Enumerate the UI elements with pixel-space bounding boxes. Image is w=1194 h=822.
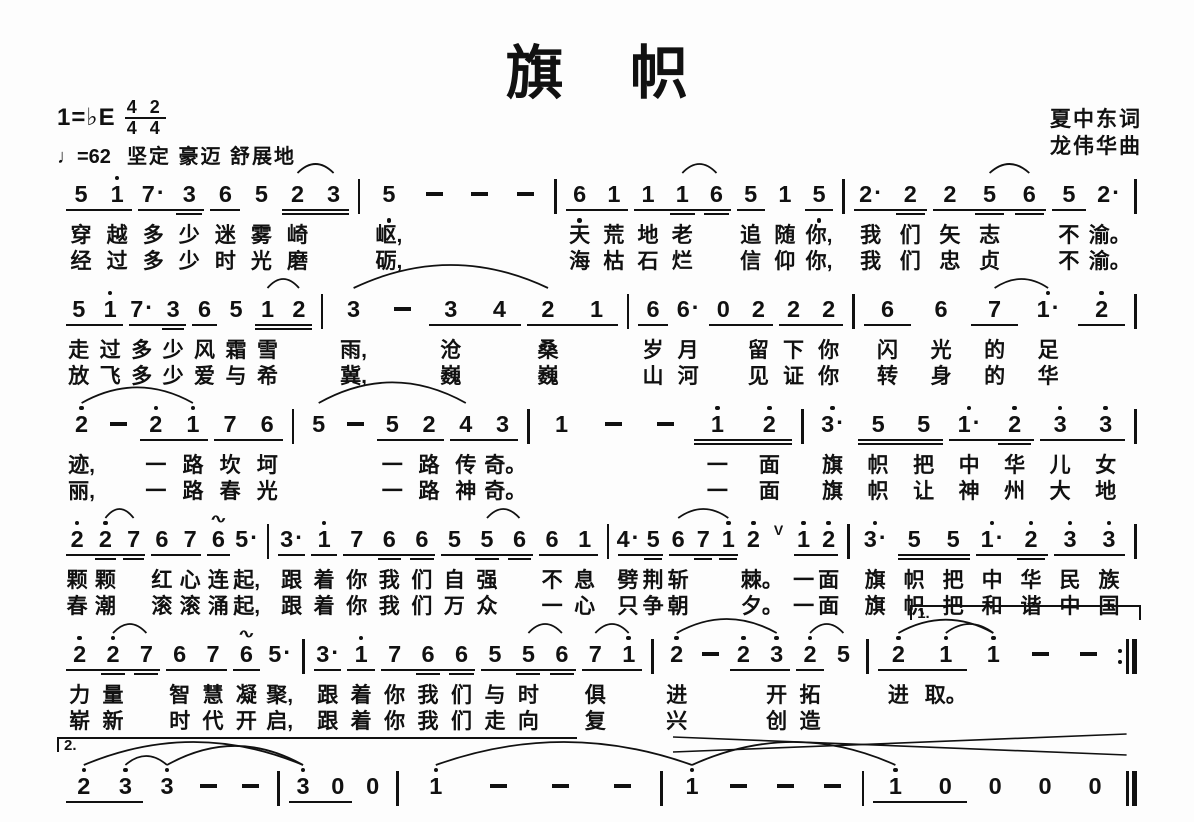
system-2: 517·36512走过多少风霜雪放飞多少爱与希33421雨,沧桑冀,巍巍66·0… — [57, 287, 1137, 389]
note-token: 0 — [920, 764, 970, 814]
note-token — [588, 402, 640, 452]
beam-line — [1078, 324, 1126, 326]
volta-label: 1. — [917, 605, 930, 622]
beam-group: 2 — [660, 632, 727, 682]
note-token: 5 — [243, 172, 279, 222]
notes-row: 5 — [360, 172, 554, 222]
lyric-syllable: 们 — [445, 709, 478, 734]
beam-line — [66, 209, 132, 211]
lyric-syllable — [572, 338, 621, 363]
lyric-syllable: 涌 — [204, 594, 232, 619]
beam-group: 5 — [802, 172, 836, 222]
note-token: 2 — [816, 517, 841, 567]
note-number: 5 — [488, 640, 501, 668]
beam-group: 671 — [666, 517, 741, 567]
lyric-syllable — [588, 479, 640, 504]
notes-row: 6671·2 — [855, 287, 1135, 337]
duration-dash — [702, 640, 719, 668]
note-token: 1 — [536, 402, 588, 452]
duration-dash — [394, 295, 411, 323]
beam-group: 3· — [311, 632, 344, 682]
note-token: 1 — [308, 517, 341, 567]
lyric-syllable: 迹, — [63, 453, 100, 478]
note-number: 6 — [198, 295, 211, 323]
beam-group: 1 — [405, 764, 654, 814]
lyric-syllable: 大 — [1037, 479, 1083, 504]
note-number: 5 — [312, 410, 325, 438]
lyrics-verse1: 迹,一路坎坷 — [57, 453, 292, 478]
volta-bracket: 1. — [910, 605, 1141, 620]
note-number: 6 — [1023, 180, 1036, 208]
measure: 22325进开拓兴创造 — [654, 632, 866, 734]
lyric-syllable: 女 — [1083, 453, 1129, 478]
note-token: 2 — [96, 632, 129, 682]
note-number: 1 — [889, 772, 902, 800]
lyric-syllable — [412, 223, 457, 248]
note-number: 7 — [388, 640, 401, 668]
lyric-syllable: 地 — [1083, 479, 1129, 504]
note-token: 2 — [992, 402, 1038, 452]
note-token: 6 — [635, 287, 670, 337]
lyric-syllable: 们 — [406, 568, 439, 593]
beam-group: 43 — [447, 402, 521, 452]
note-number: 1 — [555, 410, 568, 438]
note-number: 2 — [99, 525, 112, 553]
lyric-syllable — [503, 249, 548, 274]
lyric-syllable: 时 — [163, 709, 196, 734]
beam-extra — [449, 673, 473, 675]
note-number: 5 — [947, 525, 960, 553]
note-number: 2 — [77, 772, 90, 800]
lyric-syllable: 的 — [968, 338, 1022, 363]
beam-extra — [896, 213, 925, 215]
note-token — [1017, 632, 1064, 682]
note-number: 7· — [130, 295, 153, 323]
lyrics-verse2: 转身的华 — [855, 364, 1135, 389]
beam-line — [796, 669, 823, 671]
notes-row: 22767∿65· — [57, 517, 267, 567]
measure: 6671·2闪光的足转身的华 — [855, 287, 1135, 389]
note-number: 1 — [186, 410, 199, 438]
lyric-syllable: 旗 — [810, 453, 856, 478]
beam-group: 5 — [827, 632, 860, 682]
note-token — [412, 172, 457, 222]
note-number: 1 — [778, 180, 791, 208]
note-number: 1 — [676, 180, 689, 208]
note-token — [762, 764, 809, 814]
beam-group: 21 — [875, 632, 970, 682]
beam-group: 227 — [63, 632, 163, 682]
note-token: 5 — [802, 172, 836, 222]
note-number: 5 — [386, 410, 399, 438]
note-token: 2 — [1012, 517, 1051, 567]
note-token: 3 — [286, 764, 321, 814]
beam-group: 766 — [340, 517, 438, 567]
octave-dot-above — [873, 517, 878, 525]
lyric-syllable — [693, 709, 726, 734]
lyric-syllable: 红 — [148, 568, 176, 593]
measure: 10000 — [864, 764, 1125, 814]
duration-dash — [552, 772, 569, 800]
note-number: 1 — [622, 640, 635, 668]
note-token: 1 — [631, 172, 665, 222]
lyric-syllable: 我 — [851, 223, 891, 248]
beam-line — [441, 554, 533, 556]
beam-line — [1052, 209, 1086, 211]
lyric-syllable — [691, 594, 716, 619]
note-number: 2 — [1095, 295, 1108, 323]
note-number: 6 — [672, 525, 685, 553]
beam-line — [381, 669, 475, 671]
lyrics-verse1: 岁月留下你 — [629, 338, 852, 363]
octave-dot-above — [767, 402, 772, 410]
lyric-syllable — [716, 594, 741, 619]
barline — [1134, 409, 1137, 444]
lyric-syllable: 凝 — [230, 683, 263, 708]
breath-mark: V — [774, 516, 783, 544]
note-token — [1064, 632, 1111, 682]
lyric-syllable: 爱 — [189, 364, 220, 389]
lyric-syllable — [706, 364, 741, 389]
note-number: 3 — [1102, 525, 1115, 553]
beam-group: 12 — [791, 517, 841, 567]
barline — [1134, 524, 1137, 559]
note-token: 5 — [438, 517, 471, 567]
beam-line — [343, 554, 435, 556]
beam-line — [347, 669, 374, 671]
octave-dot-above — [191, 402, 196, 410]
notes-row: 2·225652· — [845, 172, 1135, 222]
lyric-syllable: 一 — [691, 479, 743, 504]
note-token: 7 — [196, 632, 229, 682]
notes-row: 3·551·233 — [804, 402, 1135, 452]
note-number: 1 — [429, 772, 442, 800]
beam-line — [210, 209, 240, 211]
octave-dot-above — [103, 517, 108, 525]
note-number: 6 — [455, 640, 468, 668]
note-token: 3· — [810, 402, 856, 452]
measure: 2·225652·我们矢志不渝。我们忠贞不渝。 — [845, 172, 1135, 274]
note-token: 5 — [300, 402, 337, 452]
note-number: 1 — [797, 525, 810, 553]
octave-dot-above — [322, 517, 327, 525]
octave-dot-above — [154, 402, 159, 410]
measure: 4·56712V12劈荆斩棘。一面只争朝夕。一面 — [609, 517, 847, 619]
lyric-syllable: 石 — [631, 249, 665, 274]
lyric-syllable: 华 — [1012, 568, 1051, 593]
lyric-syllable: 开 — [230, 709, 263, 734]
note-token: 1 — [768, 172, 802, 222]
lyric-syllable: 面 — [743, 453, 795, 478]
note-token: 6 — [445, 632, 478, 682]
lyric-syllable: 颗 — [91, 568, 119, 593]
beam-line — [805, 209, 833, 211]
note-number: 2 — [892, 640, 905, 668]
lyric-syllable: 帜 — [855, 479, 901, 504]
lyric-syllable: 一 — [791, 594, 816, 619]
note-token: 0 — [970, 764, 1020, 814]
lyric-syllable: 开 — [760, 683, 793, 708]
lyrics-verse1: 跟着你我们与时俱 — [305, 683, 651, 708]
note-token: 1· — [1021, 287, 1075, 337]
lyric-syllable: 身 — [914, 364, 968, 389]
note-number: 6 — [513, 525, 526, 553]
lyric-syllable: 少 — [171, 249, 207, 274]
note-token: 5 — [63, 172, 99, 222]
barline — [1134, 179, 1137, 214]
lyric-syllable: 州 — [992, 479, 1038, 504]
measure: 61116515天荒地老追随你,海枯石烂信仰你, — [557, 172, 843, 274]
repeat-dots — [1118, 639, 1122, 674]
beam-extra — [123, 558, 143, 560]
lyric-syllable — [612, 683, 645, 708]
lyric-syllable — [827, 709, 860, 734]
song-title: 旗 帜 — [0, 26, 1194, 110]
beam-group: 116 — [631, 172, 734, 222]
note-number: 4 — [459, 410, 472, 438]
beam-line — [140, 439, 208, 441]
note-token: 6 — [545, 632, 578, 682]
system-4: 22767∿65·颗颗红心连起,春潮滚滚涌起,3·176655661跟着你我们自… — [57, 517, 1137, 619]
note-number: 5 — [1062, 180, 1075, 208]
beam-group: 71 — [579, 632, 646, 682]
note-token — [503, 172, 548, 222]
note-token: 6 — [914, 287, 968, 337]
measure: 112一面一面 — [530, 402, 802, 504]
beam-group: 5 — [1049, 172, 1089, 222]
lyric-syllable — [337, 453, 374, 478]
slur-arc — [82, 387, 193, 403]
note-number: 3· — [864, 525, 887, 553]
beam-line — [1040, 439, 1125, 441]
beam-line — [255, 324, 312, 326]
note-number: 3 — [296, 772, 309, 800]
beam-line — [66, 554, 145, 556]
lyric-syllable: 过 — [99, 249, 135, 274]
notes-row: 4·56712V12 — [609, 517, 847, 567]
lyrics-verse1: 进取。 — [869, 683, 1118, 708]
octave-dot-above — [77, 632, 82, 640]
lyrics-verse2: 海枯石烂信仰你, — [557, 249, 843, 274]
lyric-syllable: 坎 — [212, 453, 249, 478]
lyric-syllable — [475, 338, 524, 363]
note-token: 1 — [669, 764, 716, 814]
note-token: 2 — [727, 632, 760, 682]
lyric-syllable: 海 — [563, 249, 597, 274]
beam-extra — [670, 213, 695, 215]
lyric-syllable: 创 — [760, 709, 793, 734]
beam-extra — [416, 673, 440, 675]
measure: 55243一路传奇。一路神奇。 — [294, 402, 527, 504]
note-token: 7 — [176, 517, 204, 567]
note-token: 4 — [447, 402, 484, 452]
note-number: 3 — [347, 295, 360, 323]
lyric-syllable: 河 — [671, 364, 706, 389]
beam-group: 2· — [1089, 172, 1129, 222]
octave-dot-above — [726, 517, 731, 525]
note-token: 3 — [484, 402, 521, 452]
lyric-syllable — [699, 223, 733, 248]
lyric-syllable: 只 — [615, 594, 640, 619]
note-number: 1 — [578, 525, 591, 553]
note-token — [592, 764, 654, 814]
octave-dot-below — [577, 218, 582, 222]
beam-group: 556 — [438, 517, 536, 567]
note-token: 1 — [870, 764, 920, 814]
note-number: 1 — [607, 180, 620, 208]
beam-line — [66, 801, 143, 803]
note-token: 6 — [207, 172, 243, 222]
notes-row: 22176 — [57, 402, 292, 452]
note-number: 7 — [140, 640, 153, 668]
lyric-syllable — [503, 223, 548, 248]
note-token: 4· — [615, 517, 640, 567]
note-token: 3· — [275, 517, 308, 567]
lyric-syllable: 启, — [263, 709, 296, 734]
beam-group: 1 — [970, 632, 1112, 682]
notes-row: 3·176655671 — [305, 632, 651, 682]
note-token: 3· — [311, 632, 344, 682]
beam-line — [949, 439, 1034, 441]
lyric-syllable: 强 — [471, 568, 504, 593]
beam-line — [278, 554, 305, 556]
lyrics-verse1: 我们矢志不渝。 — [845, 223, 1135, 248]
beam-group: 6 — [635, 287, 670, 337]
measure: 3·551·233旗帜把中华儿女旗帜让神州大地 — [804, 402, 1135, 504]
octave-dot-above — [626, 632, 631, 640]
lyrics-verse2: 旗帜让神州大地 — [804, 479, 1135, 504]
beam-group: 55 — [855, 402, 946, 452]
lyrics-verse1: 劈荆斩棘。一面 — [609, 568, 847, 593]
lyric-syllable: 朝 — [666, 594, 691, 619]
note-token: 1 — [405, 764, 467, 814]
lyric-syllable — [130, 683, 163, 708]
lyric-syllable: 转 — [861, 364, 915, 389]
notes-row: 517·36512 — [57, 287, 321, 337]
lyric-syllable: 面 — [743, 479, 795, 504]
beam-group: 1·2 — [946, 402, 1037, 452]
measure: 22767∿65·颗颗红心连起,春潮滚滚涌起, — [57, 517, 267, 619]
measure: 5岖,砺, — [360, 172, 554, 274]
note-token: 6 — [503, 517, 536, 567]
note-number: 2 — [822, 295, 835, 323]
beam-line — [192, 324, 217, 326]
beam-line — [282, 209, 348, 211]
octave-dot-above — [893, 764, 898, 772]
beam-group: 12 — [691, 402, 795, 452]
beam-group: 6 — [207, 172, 243, 222]
lyric-syllable — [766, 594, 791, 619]
note-number: 2 — [292, 295, 305, 323]
lyric-syllable: 我 — [411, 683, 444, 708]
measure-row: 22176迹,一路坎坷丽,一路春光55243一路传奇。一路神奇。112一面一面3… — [57, 402, 1137, 504]
beam-line — [289, 801, 353, 803]
beam-group: 0 — [355, 764, 390, 814]
beam-line — [933, 209, 1046, 211]
lyrics-verse1: 走过多少风霜雪 — [57, 338, 321, 363]
lyric-syllable — [457, 249, 502, 274]
lyric-syllable: 不 — [1049, 223, 1089, 248]
note-token: 6 — [373, 517, 406, 567]
beam-group: 766 — [378, 632, 478, 682]
note-number: 7 — [697, 525, 710, 553]
note-number: 2 — [422, 410, 435, 438]
octave-dot-above — [75, 517, 80, 525]
note-token: 3· — [856, 517, 895, 567]
note-token: 0 — [1020, 764, 1070, 814]
lyrics-verse1: 天荒地老追随你, — [557, 223, 843, 248]
lyric-syllable: 你 — [340, 568, 373, 593]
note-number: 1 — [722, 525, 735, 553]
measure-row: 517·36512走过多少风霜雪放飞多少爱与希33421雨,沧桑冀,巍巍66·0… — [57, 287, 1137, 389]
note-number: 1 — [987, 640, 1000, 668]
octave-dot-above — [826, 517, 831, 525]
lyric-syllable: 造 — [793, 709, 826, 734]
note-token: 1 — [94, 287, 125, 337]
note-token: 4 — [475, 287, 524, 337]
lyric-syllable: 复 — [579, 709, 612, 734]
lyric-syllable: 迷 — [207, 223, 243, 248]
duration-dash — [614, 772, 631, 800]
lyric-syllable: 山 — [635, 364, 670, 389]
lyric-syllable: 烂 — [665, 249, 699, 274]
note-token: 0 — [355, 764, 390, 814]
mordent-icon: ∿ — [241, 632, 252, 640]
beam-group: 2 — [793, 632, 826, 682]
beam-extra — [508, 558, 531, 560]
final-barline — [1126, 771, 1137, 806]
lyric-syllable: 面 — [816, 568, 841, 593]
lyric-syllable: 天 — [563, 223, 597, 248]
lyric-syllable: 春 — [212, 479, 249, 504]
beam-line — [66, 669, 160, 671]
note-token: 1 — [612, 632, 645, 682]
lyrics-verse2: 只争朝夕。一面 — [609, 594, 847, 619]
note-number: 5 — [837, 640, 850, 668]
lyric-syllable: 棘。 — [741, 568, 766, 593]
score-header: 旗 帜 1=♭E 4 2 4 4 ♩=62 坚定 豪迈 舒展地 夏中东词 龙伟华… — [0, 0, 1194, 166]
lyric-syllable: 你, — [802, 223, 836, 248]
note-number: 1 — [111, 180, 124, 208]
lyric-syllable: 一 — [137, 453, 174, 478]
lyric-syllable — [337, 479, 374, 504]
octave-dot-above — [741, 632, 746, 640]
lyric-syllable: 滚 — [176, 594, 204, 619]
lyric-syllable: 们 — [890, 249, 930, 274]
lyric-syllable: 桑 — [524, 338, 573, 363]
lyric-syllable: 代 — [196, 709, 229, 734]
lyric-syllable: 万 — [438, 594, 471, 619]
note-number: 7 — [988, 295, 1001, 323]
beam-group: 1 — [308, 517, 341, 567]
note-number: 3 — [444, 295, 457, 323]
note-number: 0 — [1039, 772, 1052, 800]
note-token — [337, 402, 374, 452]
note-number: 1 — [685, 772, 698, 800]
beam-group: 33 — [1051, 517, 1129, 567]
beam-line — [566, 209, 628, 211]
slur-arc — [692, 742, 895, 765]
lyric-syllable: 证 — [776, 364, 811, 389]
lyric-syllable — [475, 364, 524, 389]
notes-row: 3·176655661 — [269, 517, 607, 567]
lyric-syllable — [378, 338, 427, 363]
note-token: 5 — [734, 172, 768, 222]
note-number: 2 — [71, 525, 84, 553]
dynamics-hairpin — [673, 732, 1127, 758]
note-token: 6 — [406, 517, 439, 567]
note-number: 6 — [173, 640, 186, 668]
